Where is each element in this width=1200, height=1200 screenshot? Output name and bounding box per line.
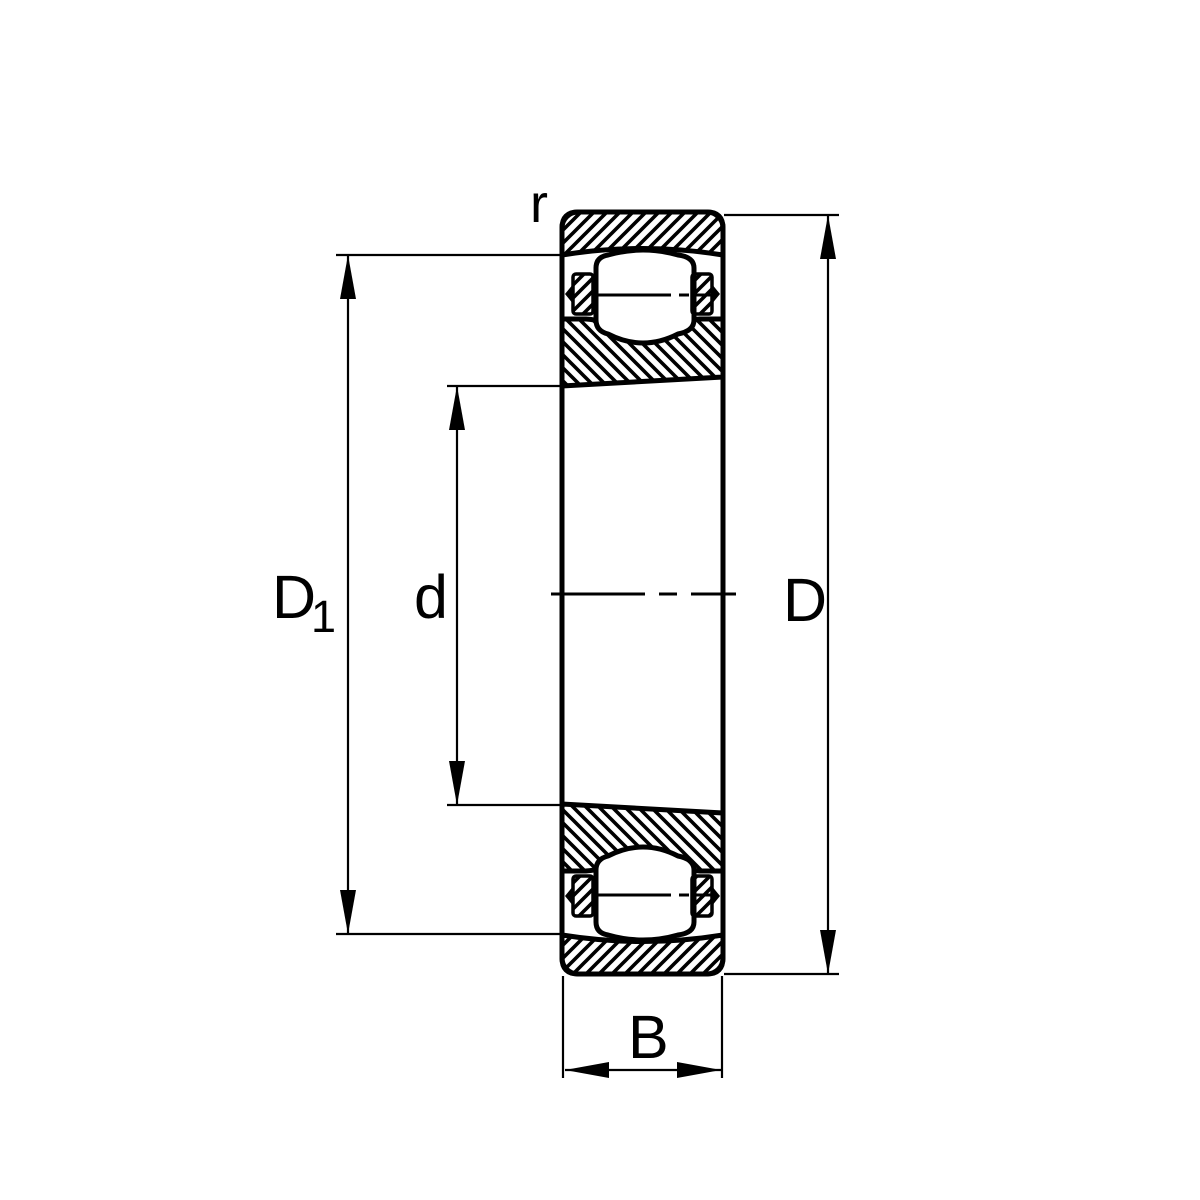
bearing-technical-drawing: r D1 d D B — [0, 0, 1200, 1200]
bearing-drawing-page: r D1 d D B — [0, 0, 1200, 1200]
bearing-section — [551, 212, 736, 974]
label-d: d — [414, 563, 448, 631]
label-b: B — [628, 1003, 669, 1071]
label-r: r — [530, 174, 548, 234]
label-outside-diameter: D — [783, 566, 827, 634]
